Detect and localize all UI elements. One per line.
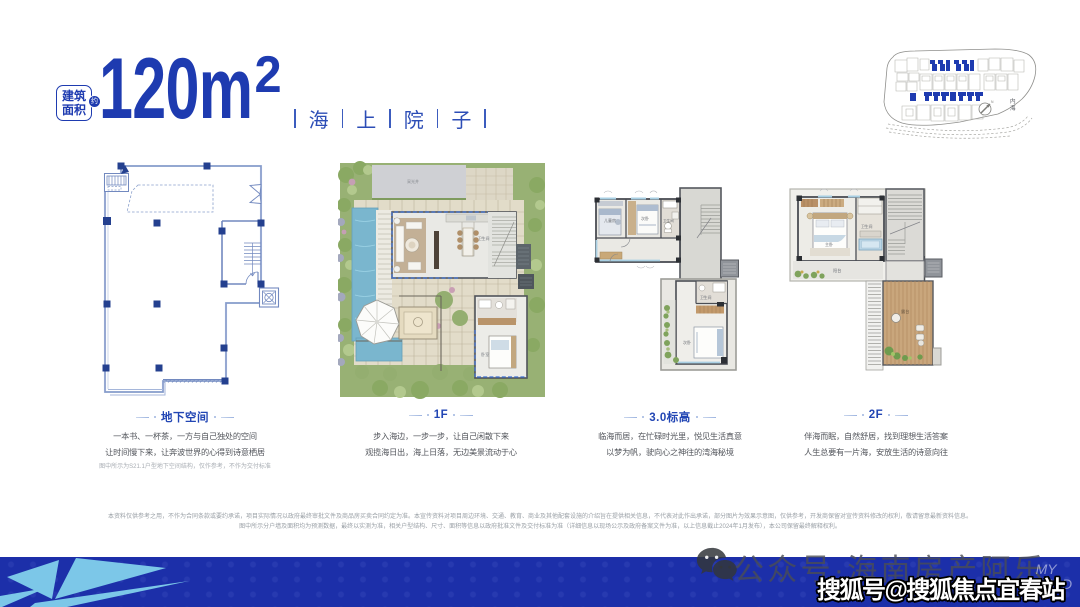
svg-text:内: 内 xyxy=(1010,97,1016,105)
svg-text:卫生间: 卫生间 xyxy=(478,236,490,241)
svg-text:露台: 露台 xyxy=(901,308,909,315)
svg-text:主卧: 主卧 xyxy=(825,241,833,247)
svg-text:次卧: 次卧 xyxy=(641,215,649,221)
svg-text:卧室: 卧室 xyxy=(481,351,489,358)
svg-text:次卧: 次卧 xyxy=(683,339,691,345)
svg-text:卫生间: 卫生间 xyxy=(700,295,712,300)
svg-text:卫生间: 卫生间 xyxy=(663,218,674,223)
svg-text:卫生间: 卫生间 xyxy=(861,224,873,229)
svg-text:采光井: 采光井 xyxy=(407,178,419,184)
svg-text:阳台: 阳台 xyxy=(833,267,841,274)
svg-text:海: 海 xyxy=(1010,104,1016,112)
svg-text:儿童房: 儿童房 xyxy=(604,217,616,223)
